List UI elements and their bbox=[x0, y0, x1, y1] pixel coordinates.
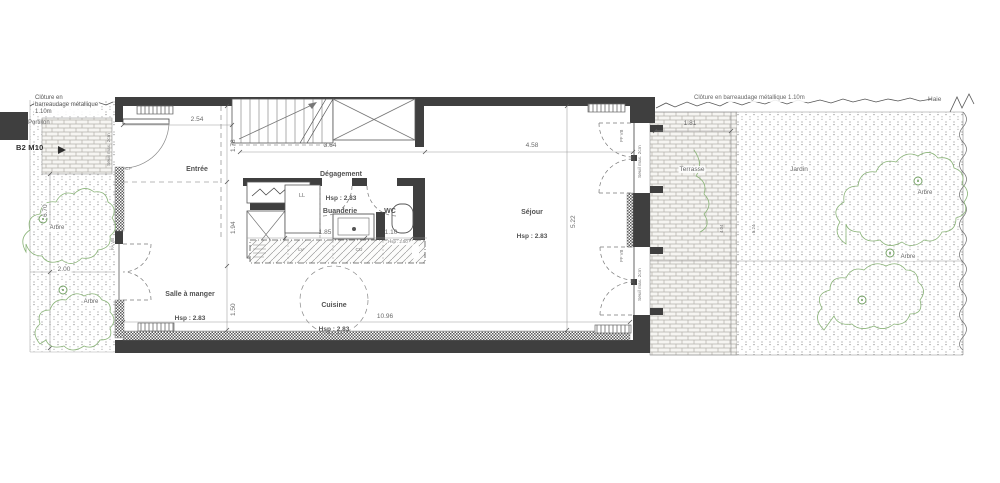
entry-path-paving bbox=[42, 118, 112, 174]
room-name: Séjour bbox=[517, 209, 548, 217]
dim-middle-depth: 1.94 bbox=[230, 221, 237, 234]
jardin-ground bbox=[737, 112, 963, 355]
entry-door-swing bbox=[123, 122, 169, 168]
hedge-symbol-icon bbox=[950, 94, 974, 112]
room-height: Hsp : 2.83 bbox=[319, 326, 350, 333]
room-name: Dégagement bbox=[320, 171, 362, 179]
arbre-label: Arbre bbox=[83, 299, 100, 306]
dim-sejour-depth: 5.22 bbox=[570, 215, 577, 228]
washbasin-drain bbox=[352, 227, 356, 231]
cooktop-label: CU bbox=[356, 248, 363, 254]
dim-bottom-depth: 1.50 bbox=[230, 303, 237, 316]
floor-plan-canvas: Clôture en barreaudage métallique 1.10m … bbox=[0, 0, 1000, 483]
radiator bbox=[595, 325, 631, 333]
dim-entree-depth: 1.78 bbox=[230, 139, 237, 152]
counter-height-note: Hsp : 2.50 bbox=[387, 240, 409, 245]
staircase bbox=[232, 99, 333, 145]
dim-garden-left-width: 2.00 bbox=[57, 266, 72, 273]
room-name: WC bbox=[384, 208, 396, 216]
radiator bbox=[588, 104, 625, 112]
floor-plan-drawing bbox=[0, 0, 1000, 483]
plan-reference-block bbox=[0, 112, 28, 140]
arbre-label: Arbre bbox=[900, 254, 917, 261]
dim-total-width: 10.96 bbox=[377, 313, 393, 320]
dim-jardin-width: 5.24 bbox=[752, 225, 757, 233]
plan-marker-label: B2 M10 bbox=[16, 144, 43, 153]
portillon-label: Portillon bbox=[28, 120, 50, 127]
terrasse-paving bbox=[650, 112, 737, 355]
dim-entree-width: 2.54 bbox=[191, 116, 204, 123]
rear-yard bbox=[650, 94, 974, 355]
fence-note-left: Clôture en barreaudage métallique 1.10m bbox=[34, 95, 99, 116]
haie-label: Haie bbox=[928, 96, 941, 103]
jardin-label: Jardin bbox=[789, 166, 809, 173]
seuil-note: Seuil max. 2cm bbox=[107, 133, 113, 166]
washing-machine-label: LL bbox=[299, 193, 305, 199]
dishwasher-label: LV bbox=[298, 248, 304, 254]
room-label-buanderie: Buanderie bbox=[323, 192, 357, 224]
arbre-label: Arbre bbox=[917, 190, 934, 197]
entry-door-leaf bbox=[123, 119, 169, 124]
radiator bbox=[137, 106, 173, 114]
void-box bbox=[333, 99, 415, 140]
room-height: Hsp : 2.83 bbox=[517, 233, 548, 240]
counter-end-fixture bbox=[412, 244, 419, 259]
fence-note-right: Clôture en barreaudage métallique 1.10m bbox=[693, 95, 806, 102]
room-label-sejour: Séjour Hsp : 2.83 bbox=[517, 193, 548, 249]
window-type-note: FA VB bbox=[111, 238, 116, 250]
cp-label: CP bbox=[125, 167, 132, 173]
window-type-note: PF VB bbox=[620, 250, 625, 262]
room-label-wc: WC bbox=[384, 192, 396, 224]
dim-wc-width: 1.10 bbox=[385, 229, 398, 236]
dim-sejour-width: 4.58 bbox=[526, 142, 539, 149]
room-label-salle-a-manger: Salle à manger Hsp : 2.83 bbox=[165, 275, 214, 331]
dim-terrasse-depth: 4.04 bbox=[720, 225, 725, 233]
room-name: Buanderie bbox=[323, 208, 357, 216]
dim-degagement-width: 3.64 bbox=[324, 142, 337, 149]
room-name: Cuisine bbox=[319, 302, 350, 310]
room-name: Salle à manger bbox=[165, 291, 214, 299]
seuil-note: Seuil max. 2cm bbox=[638, 268, 644, 301]
room-label-entree: Entrée bbox=[186, 150, 208, 182]
dim-buanderie-width: 1.85 bbox=[319, 229, 332, 236]
arbre-label: Arbre bbox=[49, 225, 66, 232]
dim-terrasse-width: 1.81 bbox=[684, 120, 697, 127]
seuil-note: Seuil max. 2cm bbox=[638, 145, 644, 178]
room-label-cuisine: Cuisine Hsp : 2.83 bbox=[319, 286, 350, 342]
room-height: Hsp : 2.83 bbox=[165, 315, 214, 322]
terrasse-label: Terrasse bbox=[679, 166, 706, 173]
dim-garden-left-depth: 6.70 bbox=[42, 203, 49, 218]
window-type-note: PF VB bbox=[620, 130, 625, 142]
room-name: Entrée bbox=[186, 166, 208, 174]
